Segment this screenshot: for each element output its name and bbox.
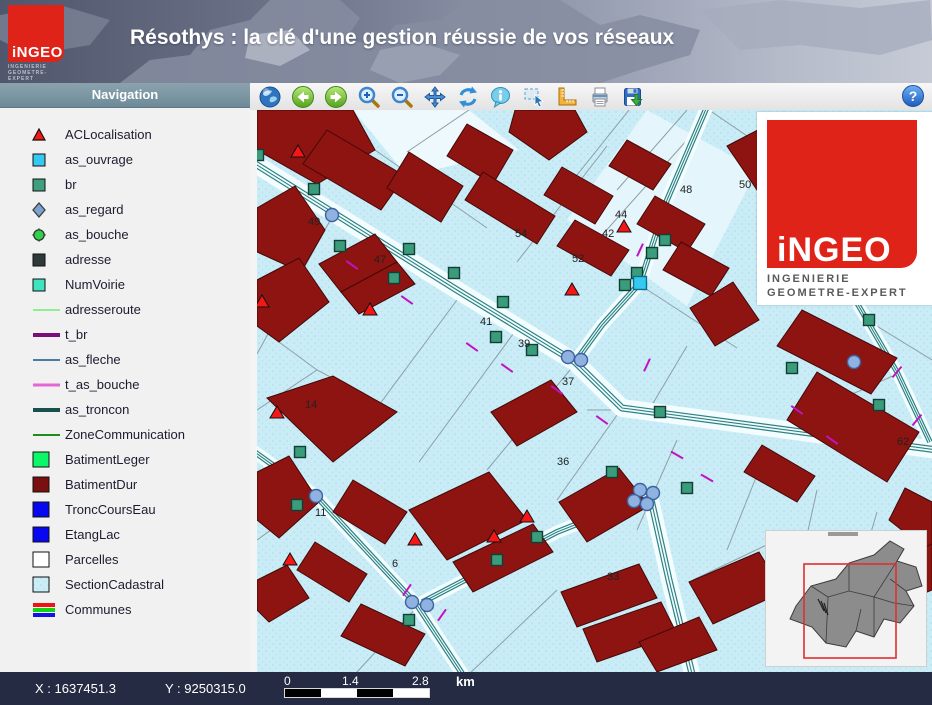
map-toolbar: ? <box>250 83 932 110</box>
legend-item-etanglac[interactable]: EtangLac <box>32 522 250 547</box>
svg-text:50: 50 <box>739 179 751 191</box>
svg-text:48: 48 <box>680 184 692 196</box>
svg-text:6: 6 <box>392 558 398 570</box>
square-darkred-icon <box>32 476 62 494</box>
printer-icon <box>588 85 612 109</box>
ingeo-logo-red-square: iNGEO <box>8 5 64 62</box>
ingeo-logo-text: iNGEO <box>12 44 63 61</box>
svg-text:36: 36 <box>557 456 569 468</box>
navigation-sidebar: Navigation ACLocalisation as_ouvrage br … <box>0 83 251 672</box>
zoom-out-button[interactable] <box>390 85 414 109</box>
legend-item-adresseroute[interactable]: adresseroute <box>32 297 250 322</box>
svg-text:41: 41 <box>480 316 492 328</box>
square-stipple-icon <box>32 576 62 594</box>
svg-text:14: 14 <box>305 399 317 411</box>
minimap-drag-handle[interactable] <box>828 532 858 536</box>
ingeo-logo-subline2: GEOMETRE-EXPERT <box>8 70 47 82</box>
svg-text:44: 44 <box>615 209 627 221</box>
legend-item-adresse[interactable]: adresse <box>32 247 250 272</box>
info-button[interactable] <box>489 85 513 109</box>
square-blue-icon <box>32 526 62 544</box>
refresh-icon <box>456 85 480 109</box>
back-button[interactable] <box>291 85 315 109</box>
svg-text:49: 49 <box>308 216 320 228</box>
legend-item-zonecommunication[interactable]: ZoneCommunication <box>32 422 250 447</box>
legend-item-batimentdur[interactable]: BatimentDur <box>32 472 250 497</box>
print-button[interactable] <box>588 85 612 109</box>
stripes-rgb-icon <box>32 601 62 619</box>
select-rectangle-icon <box>522 85 546 109</box>
zoom-in-button[interactable] <box>357 85 381 109</box>
ruler-icon <box>555 85 579 109</box>
globe-button[interactable] <box>258 85 282 109</box>
line-steelblue-icon <box>32 352 62 368</box>
legend-item-batimentleger[interactable]: BatimentLeger <box>32 447 250 472</box>
legend-item-sectioncadastral[interactable]: SectionCadastral <box>32 572 250 597</box>
legend-item-as-regard[interactable]: as_regard <box>32 197 250 222</box>
forward-arrow-icon <box>324 85 348 109</box>
ingeo-logo: iNGEO INGENIERIEGEOMETRE-EXPERT <box>8 5 68 77</box>
svg-text:33: 33 <box>607 571 619 583</box>
svg-text:?: ? <box>909 88 918 104</box>
info-bubble-icon <box>489 85 513 109</box>
legend-item-as-ouvrage[interactable]: as_ouvrage <box>32 147 250 172</box>
scale-unit: km <box>456 674 475 689</box>
svg-text:37: 37 <box>562 376 574 388</box>
pan-button[interactable] <box>423 85 447 109</box>
ingeo-logo-text: iNGEO <box>777 231 892 270</box>
square-teal-icon <box>32 177 62 193</box>
forward-button[interactable] <box>324 85 348 109</box>
svg-text:11: 11 <box>315 507 326 519</box>
x-coordinate: X : 1637451.3 <box>35 681 116 696</box>
square-turquoise-icon <box>32 277 62 293</box>
legend-item-t-as-bouche[interactable]: t_as_bouche <box>32 372 250 397</box>
zoom-in-icon <box>357 85 381 109</box>
svg-text:54: 54 <box>515 228 527 240</box>
legend-item-as-bouche[interactable]: as_bouche <box>32 222 250 247</box>
legend-item-numvoirie[interactable]: NumVoirie <box>32 272 250 297</box>
map-area[interactable]: 494741525448504442393736331114662 iNGEO … <box>250 110 932 672</box>
ingeo-logo-subline2: GEOMETRE-EXPERT <box>767 287 908 299</box>
legend-item-as-troncon[interactable]: as_troncon <box>32 397 250 422</box>
refresh-button[interactable] <box>456 85 480 109</box>
ingeo-logo-subline1: INGENIERIE <box>767 273 851 285</box>
svg-text:39: 39 <box>518 338 530 350</box>
legend-item-t-br[interactable]: t_br <box>32 322 250 347</box>
square-cyan-icon <box>32 152 62 168</box>
legend-item-tronccourseau[interactable]: TroncCoursEau <box>32 497 250 522</box>
scale-tick-2: 2.8 <box>412 674 429 688</box>
triangle-red-icon <box>32 127 62 143</box>
app-window: iNGEO INGENIERIEGEOMETRE-EXPERT Résothys… <box>0 0 932 705</box>
map-ingeo-logo-overlay: iNGEO INGENIERIEGEOMETRE-EXPERT <box>757 112 932 305</box>
scale-bar-graphic <box>284 688 430 698</box>
scale-tick-0: 0 <box>284 674 291 688</box>
line-purple-icon <box>32 327 62 343</box>
y-coordinate: Y : 9250315.0 <box>165 681 246 696</box>
app-header: iNGEO INGENIERIEGEOMETRE-EXPERT Résothys… <box>0 0 932 83</box>
line-pink-icon <box>32 377 62 393</box>
page-title: Résothys : la clé d'une gestion réussie … <box>130 26 870 50</box>
communes-overview-map <box>766 531 926 666</box>
legend-item-aclocalisation[interactable]: ACLocalisation <box>32 122 250 147</box>
pan-arrows-icon <box>423 85 447 109</box>
square-brightgreen-icon <box>32 451 62 469</box>
save-floppy-icon <box>621 85 645 109</box>
square-blue-icon <box>32 501 62 519</box>
overview-minimap[interactable] <box>765 530 927 667</box>
legend-item-parcelles[interactable]: Parcelles <box>32 547 250 572</box>
square-white-icon <box>32 551 62 569</box>
ingeo-logo-red-square: iNGEO <box>767 120 917 268</box>
status-bar: X : 1637451.3 Y : 9250315.0 0 1.4 2.8 km <box>0 672 932 705</box>
svg-text:42: 42 <box>602 228 614 240</box>
svg-text:47: 47 <box>374 254 386 266</box>
sidebar-title: Navigation <box>0 83 250 108</box>
legend-item-communes[interactable]: Communes <box>32 597 250 622</box>
diamond-steelblue-icon <box>32 202 62 218</box>
globe-icon <box>258 85 282 109</box>
square-darkgray-icon <box>32 252 62 268</box>
scale-tick-1: 1.4 <box>342 674 359 688</box>
help-icon: ? <box>901 84 925 108</box>
scale-bar: 0 1.4 2.8 km <box>284 674 484 698</box>
back-arrow-icon <box>291 85 315 109</box>
save-button[interactable] <box>621 85 645 109</box>
zoom-out-icon <box>390 85 414 109</box>
help-button[interactable]: ? <box>901 84 925 108</box>
line-lightgreen-icon <box>32 302 62 318</box>
measure-button[interactable] <box>555 85 579 109</box>
node-green-icon <box>32 227 62 243</box>
line-green-icon <box>32 427 62 443</box>
svg-text:52: 52 <box>572 253 584 265</box>
legend-item-br[interactable]: br <box>32 172 250 197</box>
layer-legend: ACLocalisation as_ouvrage br as_regard a… <box>0 108 250 622</box>
line-darkteal-icon <box>32 402 62 418</box>
select-button[interactable] <box>522 85 546 109</box>
svg-text:62: 62 <box>897 436 909 448</box>
legend-item-as-fleche[interactable]: as_fleche <box>32 347 250 372</box>
